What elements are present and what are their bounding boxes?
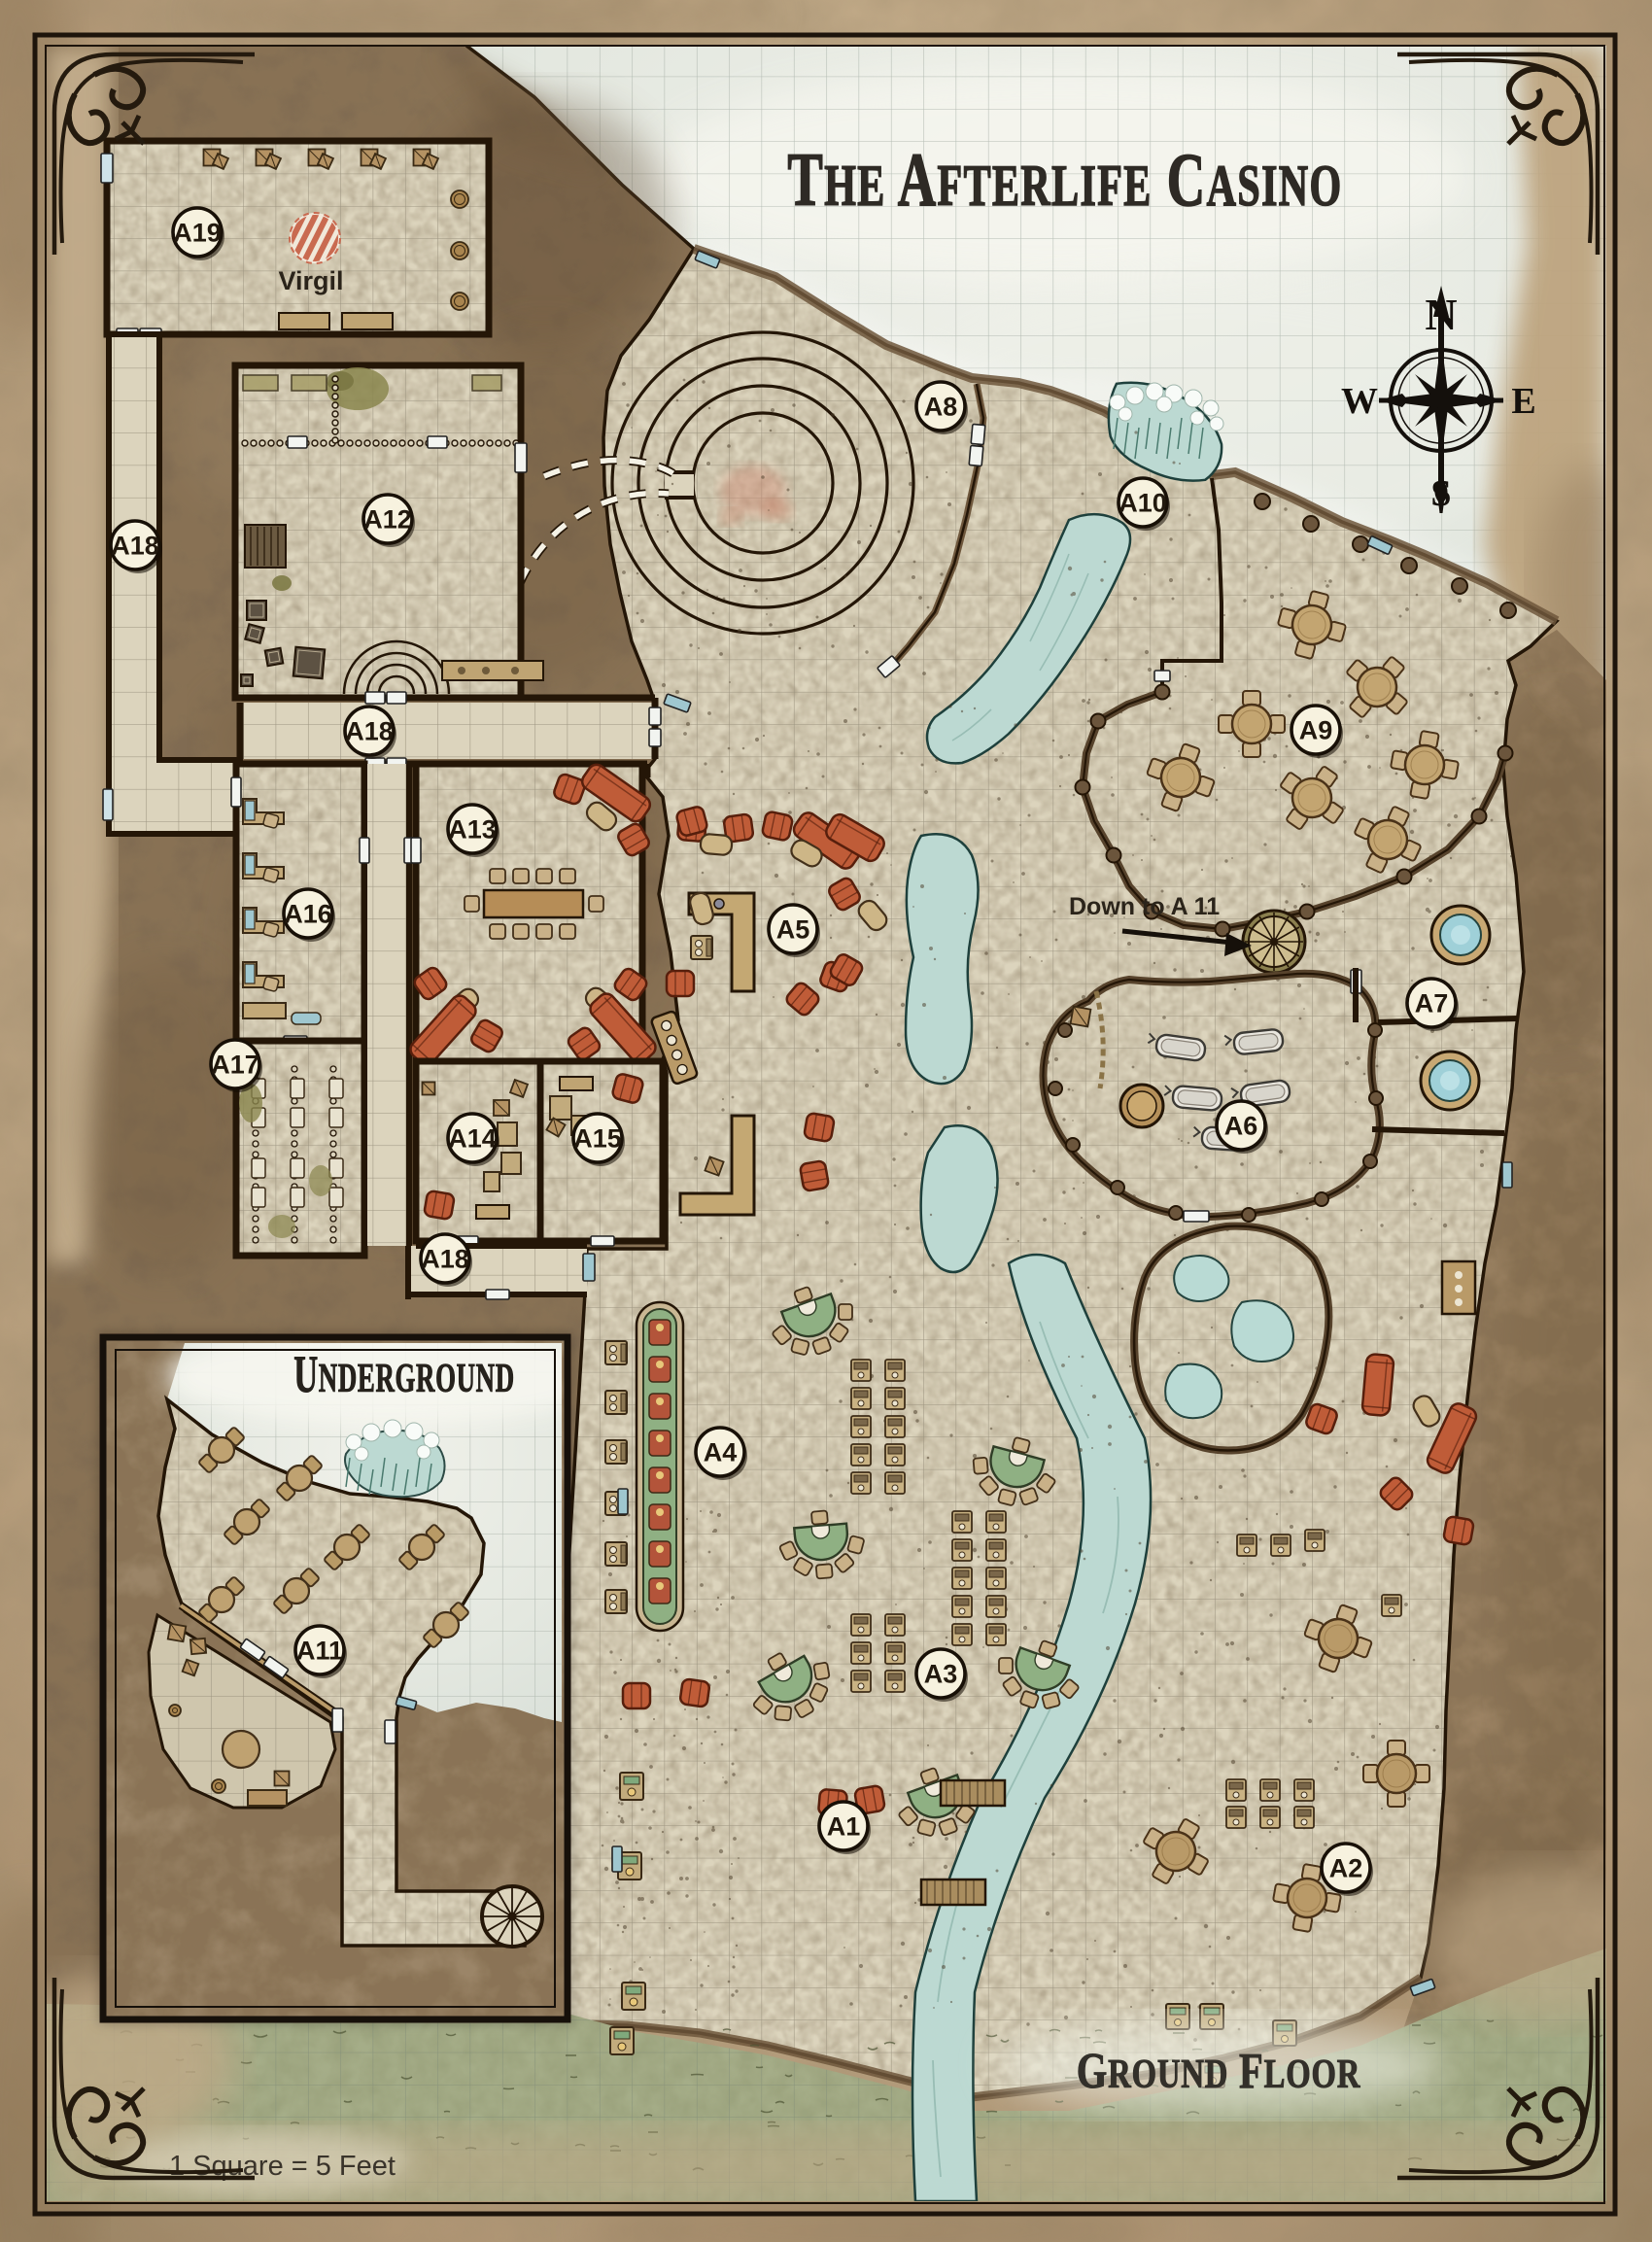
svg-text:Down to A 11: Down to A 11 (1069, 893, 1220, 920)
svg-text:A8: A8 (924, 392, 958, 421)
svg-text:A2: A2 (1329, 1853, 1363, 1882)
svg-text:A18: A18 (421, 1244, 469, 1273)
svg-text:A15: A15 (573, 1123, 622, 1153)
svg-text:A12: A12 (363, 504, 412, 534)
svg-text:A18: A18 (111, 531, 159, 560)
svg-text:A9: A9 (1299, 715, 1333, 744)
svg-text:A19: A19 (173, 218, 222, 247)
svg-text:A3: A3 (924, 1659, 958, 1688)
svg-text:A14: A14 (448, 1123, 497, 1153)
svg-text:A7: A7 (1415, 988, 1449, 1018)
svg-text:A6: A6 (1224, 1111, 1258, 1140)
svg-text:A5: A5 (776, 914, 810, 944)
svg-text:GROUND FLOOR: GROUND FLOOR (1077, 2043, 1360, 2099)
svg-text:A1: A1 (827, 1811, 861, 1841)
svg-text:S: S (1430, 473, 1451, 514)
svg-text:Virgil: Virgil (278, 266, 343, 295)
svg-text:E: E (1511, 381, 1535, 422)
svg-text:A4: A4 (704, 1437, 738, 1466)
svg-text:A10: A10 (1119, 488, 1167, 517)
svg-text:A18: A18 (345, 716, 394, 745)
svg-text:A17: A17 (211, 1050, 259, 1079)
svg-text:A11: A11 (296, 1636, 343, 1665)
svg-text:W: W (1341, 381, 1378, 422)
svg-text:N: N (1425, 290, 1457, 339)
svg-text:A16: A16 (284, 899, 332, 928)
svg-text:A13: A13 (448, 814, 497, 844)
